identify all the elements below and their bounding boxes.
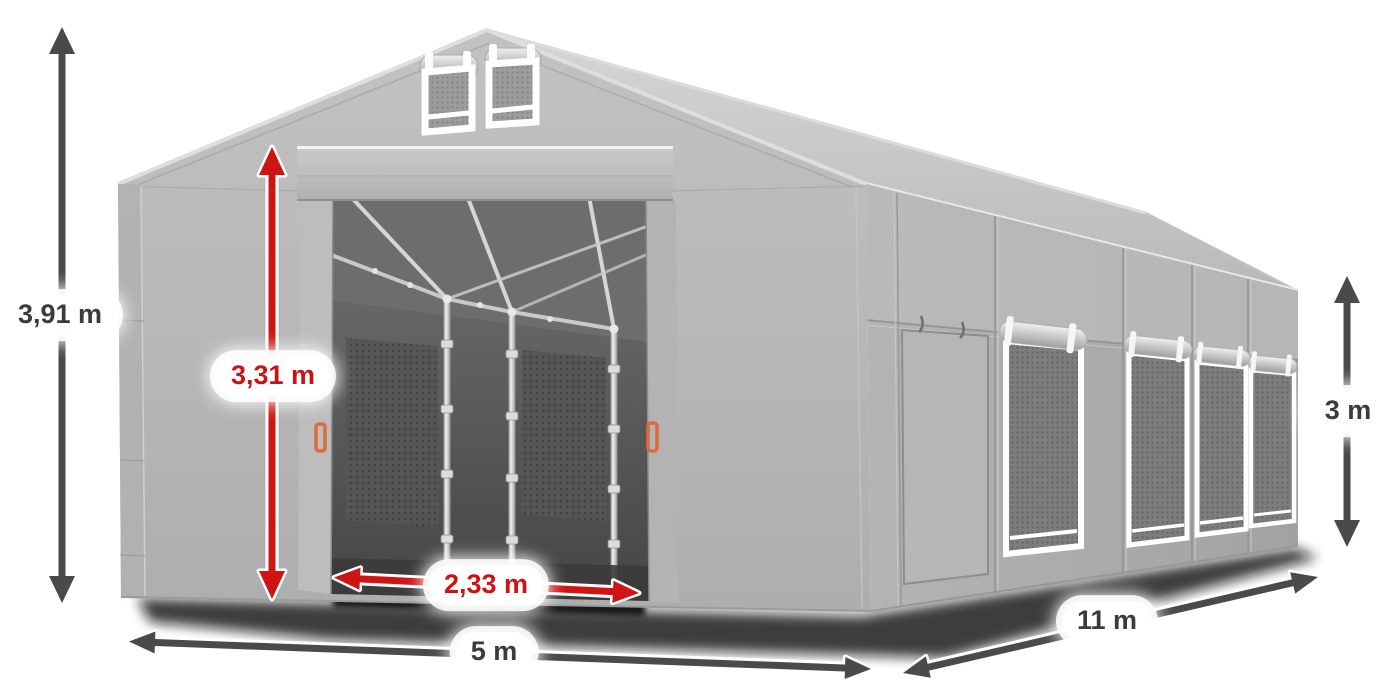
side-wall-height-label: 3 m	[1310, 391, 1387, 431]
side-window	[1123, 331, 1193, 545]
roof-vent	[420, 51, 478, 132]
entrance-door-left	[298, 201, 333, 594]
entrance-interior	[329, 196, 650, 603]
front-corner-pole	[118, 184, 146, 598]
interior-mesh-window	[522, 350, 606, 522]
side-length-label: 11 m	[1062, 601, 1152, 641]
roof-vent	[485, 44, 541, 125]
side-window	[998, 315, 1089, 554]
entrance-width-label: 2,33 m	[429, 565, 543, 605]
entrance-door-right	[646, 201, 679, 603]
front-width-label: 5 m	[456, 632, 533, 672]
product-dimension-diagram: 3,91 m 3,31 m 2,33 m 5 m 11 m 3 m	[0, 0, 1400, 700]
entrance-header-beam	[297, 146, 673, 201]
side-window	[1247, 351, 1298, 526]
side-window	[1192, 341, 1251, 535]
tent-illustration	[0, 0, 1400, 700]
total-height-label: 3,91 m	[3, 295, 117, 335]
interior-mesh-window	[346, 338, 438, 528]
tent-side-wall	[866, 184, 1298, 611]
side-door	[902, 316, 988, 584]
entrance-height-label: 3,31 m	[216, 356, 330, 396]
